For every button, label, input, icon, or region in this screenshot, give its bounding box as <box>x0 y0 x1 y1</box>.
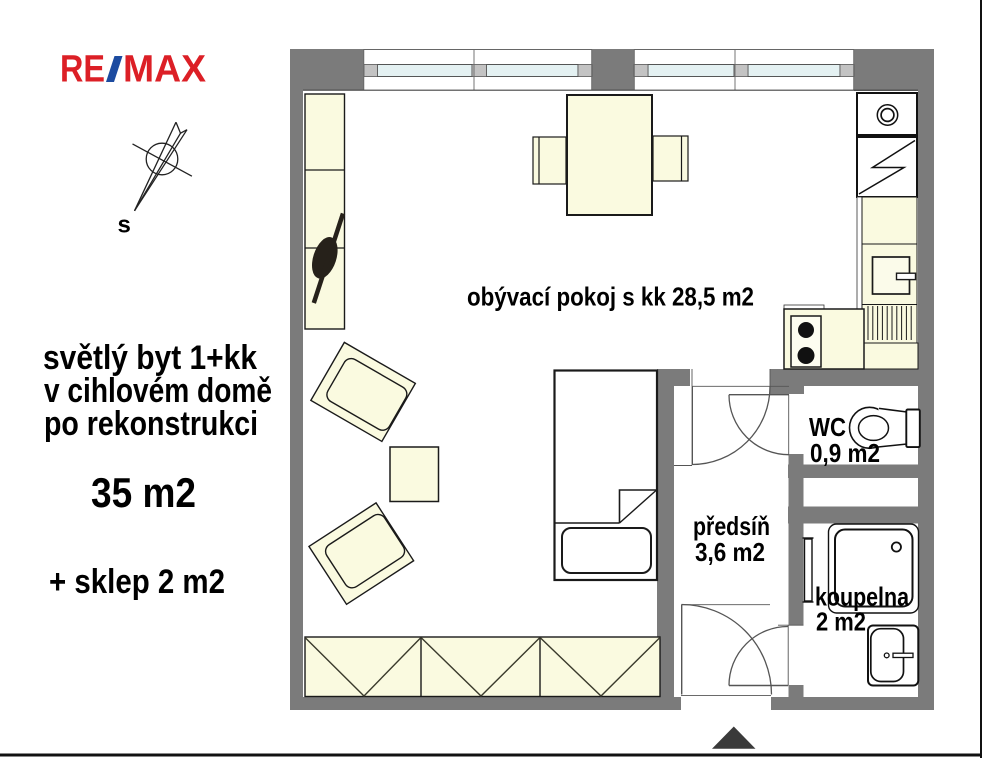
svg-text:2 m2: 2 m2 <box>816 607 866 637</box>
svg-text:MAX: MAX <box>123 49 207 91</box>
svg-text:s: s <box>118 212 131 239</box>
svg-text:+ sklep 2 m2: + sklep 2 m2 <box>49 563 225 601</box>
svg-text:35 m2: 35 m2 <box>91 469 196 516</box>
svg-text:RE: RE <box>60 49 105 91</box>
svg-text:obývací pokoj s kk 28,5 m2: obývací pokoj s kk 28,5 m2 <box>467 282 754 312</box>
svg-text:po rekonstrukci: po rekonstrukci <box>44 405 258 443</box>
svg-text:0,9 m2: 0,9 m2 <box>810 438 880 468</box>
svg-text:3,6 m2: 3,6 m2 <box>695 537 765 567</box>
